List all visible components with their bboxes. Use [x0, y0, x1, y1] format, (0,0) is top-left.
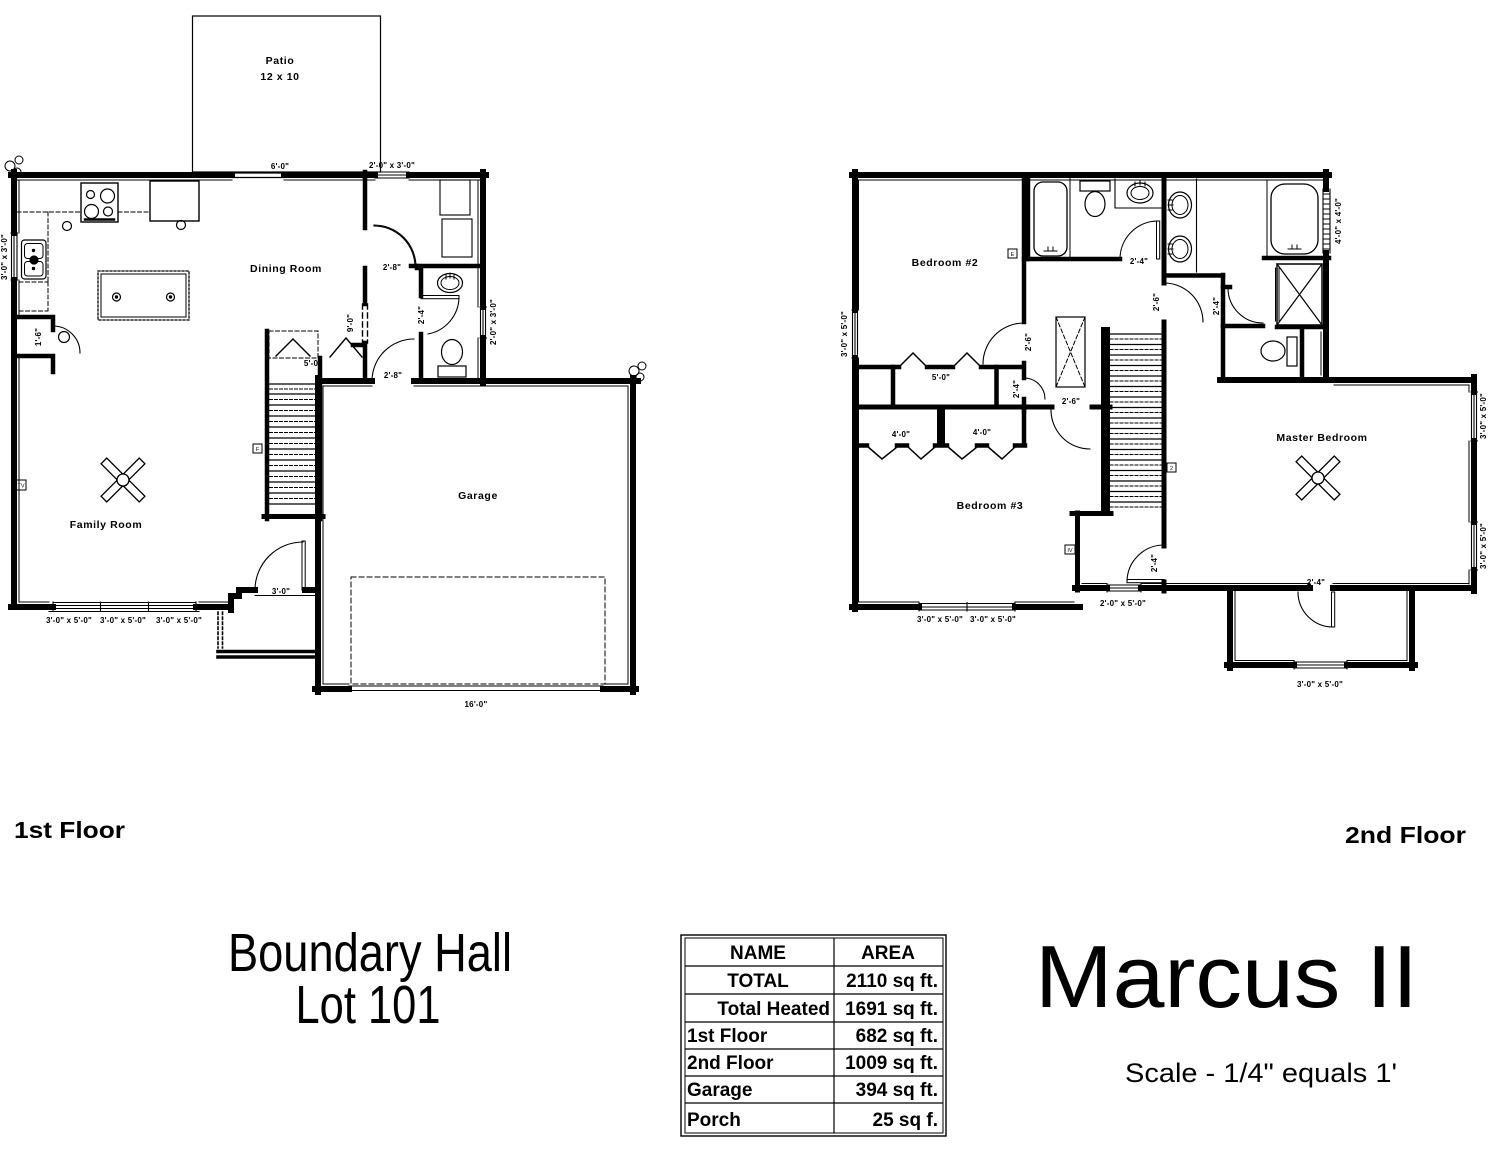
svg-text:2'-4": 2'-4": [417, 306, 426, 324]
svg-text:1691 sq ft.: 1691 sq ft.: [845, 999, 938, 1020]
svg-text:3'-0" x 5'-0": 3'-0" x 5'-0": [46, 616, 92, 625]
svg-text:3'-0" x 5'-0": 3'-0" x 5'-0": [1297, 680, 1343, 689]
svg-text:1st Floor: 1st Floor: [687, 1026, 768, 1047]
svg-text:6'-0": 6'-0": [271, 162, 289, 171]
svg-text:3'-0" x 3'-0": 3'-0" x 3'-0": [0, 234, 9, 280]
svg-text:2nd Floor: 2nd Floor: [687, 1053, 774, 1074]
svg-text:9'-0": 9'-0": [346, 314, 355, 332]
svg-text:Boundary Hall: Boundary Hall: [228, 923, 512, 983]
svg-text:16'-0": 16'-0": [465, 700, 488, 709]
svg-text:3'-0" x 5'-0": 3'-0" x 5'-0": [100, 616, 146, 625]
svg-text:E: E: [1011, 252, 1015, 258]
svg-text:2: 2: [1170, 466, 1173, 472]
svg-text:2'-0" x 3'-0": 2'-0" x 3'-0": [489, 299, 498, 345]
svg-text:NAME: NAME: [730, 943, 786, 964]
svg-text:Lot 101: Lot 101: [296, 975, 441, 1035]
svg-text:2'-4": 2'-4": [1130, 257, 1148, 266]
svg-text:2'-8": 2'-8": [384, 371, 402, 380]
svg-text:2'-4": 2'-4": [1150, 554, 1159, 572]
svg-text:Family Room: Family Room: [70, 519, 143, 531]
svg-text:Garage: Garage: [458, 490, 498, 502]
svg-text:3'-0" x 5'-0": 3'-0" x 5'-0": [1479, 523, 1488, 569]
svg-text:Total Heated: Total Heated: [717, 999, 830, 1020]
svg-text:3'-0": 3'-0": [272, 587, 290, 596]
svg-text:2'-4": 2'-4": [1212, 297, 1221, 315]
svg-text:4'-0" x 4'-0": 4'-0" x 4'-0": [1334, 198, 1343, 244]
svg-text:Scale - 1/4" equals 1': Scale - 1/4" equals 1': [1125, 1058, 1397, 1088]
svg-text:Patio: Patio: [266, 55, 295, 67]
svg-text:2110 sq ft.: 2110 sq ft.: [846, 971, 938, 992]
svg-text:394 sq ft.: 394 sq ft.: [856, 1080, 938, 1101]
svg-text:5'-0": 5'-0": [304, 359, 322, 368]
svg-text:2'-6": 2'-6": [1062, 397, 1080, 406]
svg-text:1'-6": 1'-6": [34, 328, 43, 346]
svg-text:25 sq f.: 25 sq f.: [873, 1110, 938, 1131]
svg-text:Bedroom #2: Bedroom #2: [912, 257, 979, 269]
svg-text:F: F: [256, 447, 260, 453]
svg-text:2'-0" x 3'-0": 2'-0" x 3'-0": [369, 161, 415, 170]
svg-text:4'-0": 4'-0": [973, 428, 991, 437]
svg-text:Garage: Garage: [687, 1080, 752, 1101]
svg-text:Marcus II: Marcus II: [1035, 927, 1418, 1026]
svg-text:Bedroom #3: Bedroom #3: [957, 500, 1024, 512]
svg-text:TOTAL: TOTAL: [727, 971, 789, 992]
svg-text:Dining Room: Dining Room: [250, 263, 322, 275]
svg-text:3'-0" x 5'-0": 3'-0" x 5'-0": [970, 615, 1016, 624]
svg-text:5'-0": 5'-0": [932, 373, 950, 382]
svg-text:3'-0" x 5'-0": 3'-0" x 5'-0": [156, 616, 202, 625]
svg-text:2'-6": 2'-6": [1024, 333, 1033, 351]
svg-text:2'-0" x 5'-0": 2'-0" x 5'-0": [1100, 599, 1146, 608]
svg-text:2'-6": 2'-6": [1152, 293, 1161, 311]
svg-text:4'-0": 4'-0": [892, 430, 910, 439]
svg-text:Master Bedroom: Master Bedroom: [1276, 432, 1367, 444]
svg-text:3'-0" x 5'-0": 3'-0" x 5'-0": [917, 615, 963, 624]
svg-text:1st Floor: 1st Floor: [14, 817, 125, 843]
svg-text:AREA: AREA: [861, 943, 915, 964]
svg-text:3'-0" x 5'-0": 3'-0" x 5'-0": [840, 311, 849, 357]
svg-text:682 sq ft.: 682 sq ft.: [856, 1026, 938, 1047]
svg-text:Porch: Porch: [687, 1110, 741, 1131]
svg-text:2'-4": 2'-4": [1012, 380, 1021, 398]
svg-text:2'-8": 2'-8": [383, 263, 401, 272]
svg-text:12 x 10: 12 x 10: [260, 71, 299, 83]
svg-text:1009 sq ft.: 1009 sq ft.: [845, 1053, 938, 1074]
svg-text:2nd Floor: 2nd Floor: [1345, 822, 1466, 848]
svg-text:2'-4": 2'-4": [1307, 578, 1325, 587]
svg-text:IV: IV: [1067, 548, 1073, 554]
svg-text:3'-0" x 5'-0": 3'-0" x 5'-0": [1479, 393, 1488, 439]
